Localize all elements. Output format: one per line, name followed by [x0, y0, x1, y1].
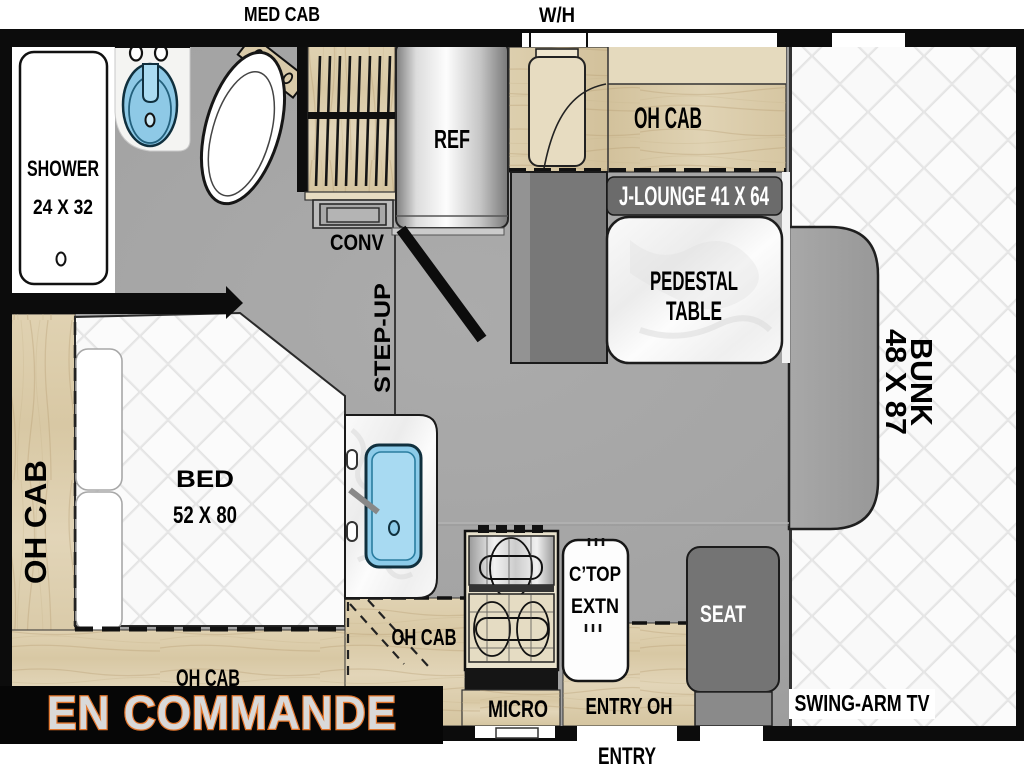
svg-text:24 X 32: 24 X 32 — [33, 196, 93, 219]
svg-text:OH CAB: OH CAB — [18, 460, 53, 584]
svg-text:MED CAB: MED CAB — [244, 4, 320, 26]
svg-text:BED: BED — [176, 466, 234, 493]
svg-text:EXTN: EXTN — [571, 595, 619, 618]
svg-text:STEP-UP: STEP-UP — [370, 283, 395, 393]
svg-text:TABLE: TABLE — [666, 296, 722, 326]
svg-text:52 X 80: 52 X 80 — [173, 502, 237, 529]
svg-text:W/H: W/H — [539, 4, 575, 27]
svg-text:SHOWER: SHOWER — [27, 156, 99, 181]
svg-text:OH CAB: OH CAB — [392, 624, 457, 650]
svg-text:SWING-ARM TV: SWING-ARM TV — [795, 690, 931, 716]
svg-text:OH CAB: OH CAB — [634, 102, 702, 135]
svg-text:ENTRY: ENTRY — [598, 743, 656, 768]
svg-text:MICRO: MICRO — [488, 696, 548, 723]
svg-text:SEAT: SEAT — [700, 601, 746, 628]
svg-text:C’TOP: C’TOP — [569, 563, 621, 586]
svg-text:CONV: CONV — [330, 230, 384, 255]
svg-text:REF: REF — [434, 124, 470, 154]
svg-text:PEDESTAL: PEDESTAL — [650, 266, 738, 296]
svg-text:EN COMMANDE: EN COMMANDE — [47, 686, 397, 739]
svg-text:48 X 87: 48 X 87 — [879, 329, 911, 435]
svg-text:ENTRY OH: ENTRY OH — [586, 693, 673, 719]
svg-text:J-LOUNGE 41 X 64: J-LOUNGE 41 X 64 — [619, 181, 769, 211]
